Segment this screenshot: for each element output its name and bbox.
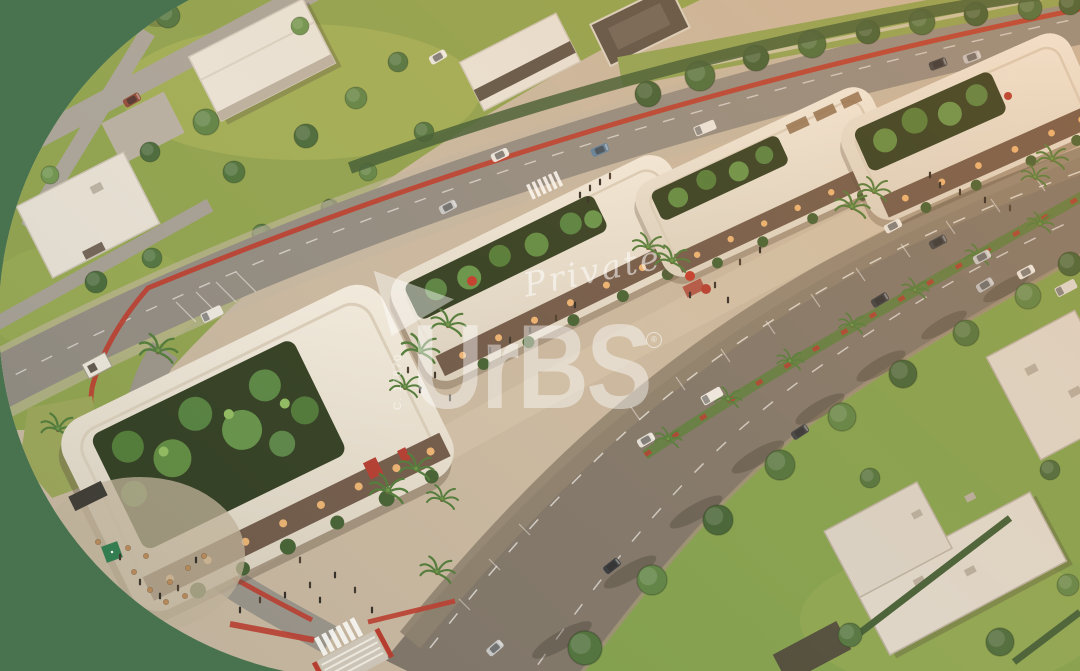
listing-photo-card: UrBS ® Private C. 17870 xyxy=(0,0,1080,671)
brand-watermark: UrBS xyxy=(410,310,670,430)
brand-watermark-text: UrBS xyxy=(412,310,650,430)
